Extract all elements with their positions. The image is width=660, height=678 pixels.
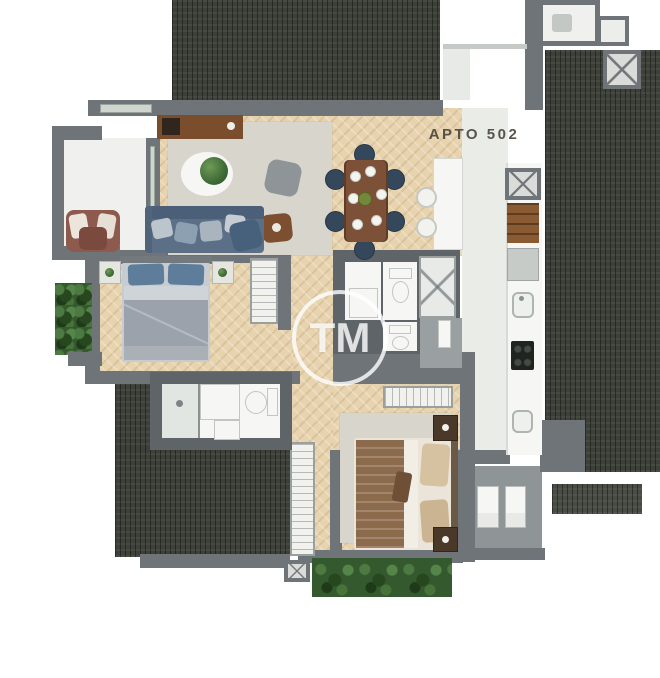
balcony-armchair	[66, 210, 120, 252]
toilet1-tank	[267, 388, 278, 416]
kitchen-faucet	[519, 296, 524, 301]
ac-unit-1	[477, 486, 499, 528]
wall-balcony-left	[52, 126, 64, 258]
coffee-table-plant	[200, 157, 228, 185]
shaft-bottom	[284, 560, 310, 582]
ac-unit-2	[505, 486, 526, 528]
utility-divider	[443, 44, 527, 49]
kitchen-wood-cabinet	[507, 203, 539, 243]
master-lamp-bottom	[442, 536, 449, 543]
nightstand-plant-right	[218, 268, 227, 277]
kitchen-sink-2	[512, 410, 533, 433]
hall-closet	[290, 442, 315, 556]
roof-bottom-left	[115, 449, 290, 557]
sofa-pillow-2	[173, 221, 198, 245]
floor-plan-canvas: APTO 502 TM	[0, 0, 660, 678]
centerpiece-bowl	[358, 192, 372, 206]
dining-chair-2	[354, 239, 375, 260]
nightstand-plant-left	[105, 268, 114, 277]
sofa-backrest	[145, 206, 264, 219]
bathroom1-cabinet	[214, 420, 240, 440]
sofa-armrest	[145, 206, 152, 253]
window-top	[100, 104, 152, 113]
master-shower	[419, 256, 456, 318]
entry-door	[438, 320, 451, 348]
toilet2-bowl	[392, 281, 409, 303]
bedroom1-bed	[120, 256, 212, 362]
unit-label: APTO 502	[408, 126, 540, 148]
sideboard-vase	[227, 122, 235, 130]
bed1-foot	[124, 346, 208, 360]
planter-wall	[68, 352, 102, 366]
shaft-top-right	[603, 50, 641, 89]
balcony-planter	[312, 558, 452, 597]
master-lamp-top	[442, 424, 449, 431]
side-table-tray	[272, 223, 281, 232]
wall-terrace-top	[452, 450, 510, 464]
wall-terrace-bottom	[452, 548, 545, 560]
sofa	[145, 206, 264, 253]
vertical-garden	[55, 283, 92, 355]
master-wardrobe	[383, 386, 453, 408]
toilet1-bowl	[245, 391, 267, 414]
bedroom1-wardrobe	[250, 258, 278, 324]
island-stool-2	[416, 217, 437, 238]
shaft-kitchen	[505, 168, 541, 200]
sofa-pillow-1	[150, 217, 174, 240]
bed1-pillow-1	[128, 263, 165, 285]
utility-area	[443, 47, 470, 100]
armchair-seat	[79, 227, 107, 250]
sofa-throw	[228, 218, 264, 253]
wall-balcony-top	[52, 126, 102, 140]
watermark-text: TM	[310, 314, 371, 362]
sideboard-decor	[162, 118, 180, 135]
roof-slab-bottom-right	[552, 484, 642, 514]
cooktop	[511, 341, 534, 370]
kitchen-island	[433, 158, 463, 250]
plate-5	[352, 219, 363, 230]
fridge	[507, 248, 539, 281]
toilet2-tank	[389, 268, 412, 279]
toilet3-tank	[389, 325, 411, 334]
roof-notch	[540, 420, 585, 472]
bathroom1-vanity	[200, 384, 240, 420]
plate-4	[376, 189, 387, 200]
watermark-logo: TM	[292, 290, 388, 386]
toilet3-bowl	[392, 336, 409, 350]
dining-chair-4	[325, 211, 346, 232]
bed1-pillow-2	[168, 263, 205, 285]
plate-2	[365, 166, 376, 177]
master-bed-pillow-1	[420, 443, 451, 487]
bed1-blanket	[124, 300, 208, 348]
top-right-fixture	[552, 14, 572, 32]
roof-right	[545, 50, 660, 472]
island-stool-1	[416, 187, 437, 208]
sofa-pillow-3	[199, 220, 223, 242]
shower1	[162, 384, 200, 438]
top-right-box	[597, 16, 629, 46]
plate-6	[371, 215, 382, 226]
roof-top	[172, 0, 440, 104]
wall-bottom-left-band	[140, 554, 290, 568]
wall-bedroom1-right	[278, 255, 291, 330]
plate-1	[350, 171, 361, 182]
shower1-drain-icon	[176, 400, 183, 407]
dining-chair-3	[325, 169, 346, 190]
